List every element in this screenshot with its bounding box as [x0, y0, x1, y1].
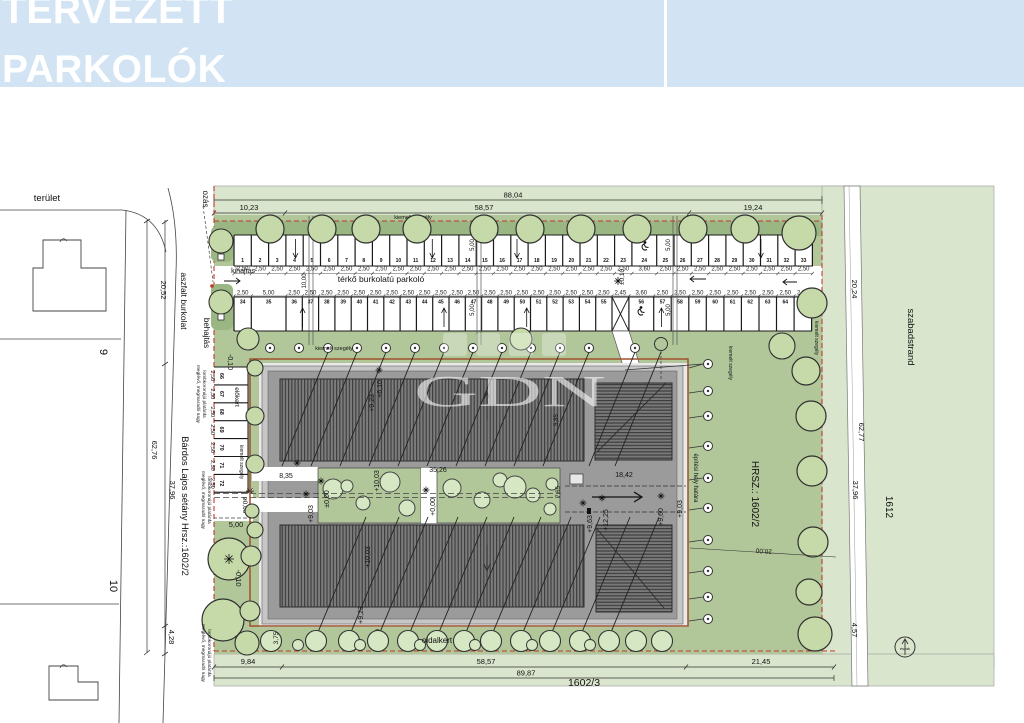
svg-text:2,50: 2,50 [209, 389, 215, 400]
svg-text:9: 9 [380, 258, 383, 264]
svg-text:2,50: 2,50 [600, 267, 612, 273]
svg-text:10: 10 [396, 258, 402, 264]
svg-text:2,50: 2,50 [566, 267, 578, 273]
svg-text:2,50: 2,50 [657, 291, 669, 297]
svg-text:+10,03: +10,03 [374, 470, 381, 492]
svg-text:25: 25 [663, 258, 669, 264]
svg-text:2,50: 2,50 [209, 371, 215, 382]
svg-text:5,00: 5,00 [666, 239, 672, 251]
svg-text:2,50: 2,50 [744, 291, 756, 297]
svg-text:14: 14 [465, 258, 471, 264]
svg-text:2,50: 2,50 [402, 291, 414, 297]
svg-text:9: 9 [97, 349, 109, 355]
svg-text:37: 37 [308, 300, 314, 306]
svg-text:11: 11 [413, 258, 419, 264]
svg-text:+0,00: +0,00 [430, 498, 437, 516]
svg-text:2,50: 2,50 [565, 291, 577, 297]
svg-text:2,50: 2,50 [533, 291, 545, 297]
svg-text:20,52: 20,52 [159, 281, 168, 300]
svg-text:5,00: 5,00 [470, 304, 476, 316]
svg-text:meglévő, megmaradó nagy: meglévő, megmaradó nagy [200, 624, 206, 683]
svg-text:kiemelt szegély: kiemelt szegély [813, 321, 819, 356]
svg-text:3,60: 3,60 [635, 291, 647, 297]
svg-text:2,50: 2,50 [321, 291, 333, 297]
svg-text:20,00: 20,00 [755, 546, 772, 554]
svg-text:10,23: 10,23 [240, 203, 259, 212]
svg-text:±0,10: ±0,10 [619, 269, 626, 286]
svg-text:43: 43 [406, 300, 412, 306]
svg-text:2,50: 2,50 [779, 291, 791, 297]
svg-text:64: 64 [783, 300, 789, 306]
svg-text:21,45: 21,45 [752, 657, 771, 666]
svg-text:2,50: 2,50 [289, 267, 301, 273]
svg-text:52: 52 [552, 300, 558, 306]
svg-text:70: 70 [218, 445, 224, 451]
svg-text:4,28: 4,28 [167, 630, 176, 645]
svg-text:17: 17 [517, 258, 523, 264]
svg-text:GDN: GDN [414, 367, 606, 416]
svg-text:2,50: 2,50 [496, 267, 508, 273]
svg-text:2,50: 2,50 [711, 267, 723, 273]
svg-text:55: 55 [601, 300, 607, 306]
svg-text:58: 58 [677, 300, 683, 306]
svg-text:40: 40 [357, 300, 363, 306]
svg-text:61: 61 [730, 300, 736, 306]
svg-text:-0,10: -0,10 [234, 569, 243, 586]
svg-text:62,76: 62,76 [150, 441, 159, 460]
svg-text:23: 23 [620, 258, 626, 264]
svg-text:2: 2 [259, 258, 262, 264]
svg-text:behajtás: behajtás [202, 318, 211, 348]
svg-text:+12,25: +12,25 [603, 509, 610, 531]
svg-text:kihajtás: kihajtás [231, 268, 255, 275]
svg-text:60: 60 [712, 300, 718, 306]
svg-text:59: 59 [695, 300, 701, 306]
svg-text:2,50: 2,50 [288, 291, 300, 297]
svg-text:67: 67 [218, 391, 224, 397]
svg-text:58,57: 58,57 [477, 657, 496, 666]
svg-text:2,50: 2,50 [517, 291, 529, 297]
svg-text:15: 15 [482, 258, 488, 264]
svg-text:7,65: 7,65 [556, 486, 562, 498]
svg-text:20,24: 20,24 [850, 280, 859, 299]
svg-text:kiemelt szegély: kiemelt szegély [727, 346, 733, 381]
svg-text:2,50: 2,50 [375, 267, 387, 273]
svg-text:2,50: 2,50 [209, 442, 215, 453]
svg-text:37,96: 37,96 [851, 481, 860, 500]
svg-text:±0,00: ±0,00 [324, 490, 331, 508]
svg-text:50: 50 [520, 300, 526, 306]
svg-text:6: 6 [328, 258, 331, 264]
svg-text:9,84: 9,84 [241, 657, 256, 666]
svg-text:észak: észak [900, 647, 910, 651]
svg-text:71: 71 [218, 462, 224, 468]
svg-text:45: 45 [438, 300, 444, 306]
svg-text:2,50: 2,50 [549, 291, 561, 297]
svg-text:51: 51 [536, 300, 542, 306]
svg-text:44: 44 [422, 300, 428, 306]
svg-text:5,00: 5,00 [229, 520, 244, 529]
svg-text:2,50: 2,50 [692, 291, 704, 297]
svg-text:2,50: 2,50 [763, 267, 775, 273]
svg-text:aszfalt burkolat: aszfalt burkolat [179, 272, 189, 330]
svg-text:2,50: 2,50 [674, 291, 686, 297]
svg-text:18,42: 18,42 [615, 472, 633, 479]
svg-text:HRSZ.: 1602/2: HRSZ.: 1602/2 [749, 461, 760, 528]
svg-text:2,50: 2,50 [305, 291, 317, 297]
svg-text:2,50: 2,50 [323, 267, 335, 273]
svg-text:19: 19 [551, 258, 557, 264]
svg-text:19,24: 19,24 [744, 203, 763, 212]
svg-text:4: 4 [293, 258, 296, 264]
svg-text:oldalkert: oldalkert [422, 636, 453, 645]
svg-text:20: 20 [569, 258, 575, 264]
svg-text:-0,10: -0,10 [226, 354, 233, 370]
svg-text:29: 29 [732, 258, 738, 264]
svg-text:21: 21 [586, 258, 592, 264]
svg-text:2,50: 2,50 [677, 267, 689, 273]
svg-text:10,00: 10,00 [302, 273, 308, 289]
svg-text:+9,60: +9,60 [658, 508, 665, 526]
svg-text:63: 63 [765, 300, 771, 306]
svg-text:3: 3 [276, 258, 279, 264]
svg-text:89,87: 89,87 [517, 669, 536, 678]
svg-text:69: 69 [218, 427, 224, 433]
svg-text:35,26: 35,26 [429, 467, 447, 474]
svg-text:18: 18 [534, 258, 540, 264]
svg-text:62: 62 [747, 300, 753, 306]
svg-text:2,50: 2,50 [209, 424, 215, 435]
svg-text:+10,03: +10,03 [365, 546, 372, 568]
svg-text:2,50: 2,50 [341, 267, 353, 273]
svg-text:2,50: 2,50 [709, 291, 721, 297]
svg-text:2,50: 2,50 [660, 267, 672, 273]
svg-text:53: 53 [568, 300, 574, 306]
svg-text:30: 30 [749, 258, 755, 264]
svg-text:lombkoronájú platánfa: lombkoronájú platánfa [206, 476, 212, 524]
svg-text:7: 7 [345, 258, 348, 264]
svg-text:+9,63: +9,63 [587, 515, 594, 533]
svg-text:22: 22 [603, 258, 609, 264]
svg-text:62,77: 62,77 [857, 423, 866, 442]
svg-text:2,50: 2,50 [254, 267, 266, 273]
svg-text:2,50: 2,50 [583, 267, 595, 273]
svg-text:Bárdos Lajos sétány Hrsz.:1602: Bárdos Lajos sétány Hrsz.:1602/2 [180, 436, 190, 576]
svg-text:+6,10: +6,10 [377, 380, 384, 398]
svg-text:27: 27 [697, 258, 703, 264]
svg-text:57: 57 [660, 300, 666, 306]
svg-text:42: 42 [389, 300, 395, 306]
svg-text:2,50: 2,50 [531, 267, 543, 273]
svg-text:2,50: 2,50 [548, 267, 560, 273]
svg-text:66: 66 [218, 373, 224, 379]
svg-text:+9,03: +9,03 [677, 500, 684, 518]
svg-text:szabadstrand: szabadstrand [905, 308, 916, 365]
svg-text:35: 35 [266, 300, 272, 306]
svg-text:2,50: 2,50 [462, 267, 474, 273]
svg-text:2,50: 2,50 [370, 291, 382, 297]
svg-text:2,50: 2,50 [762, 291, 774, 297]
svg-text:meglévő, megmaradó nagy: meglévő, megmaradó nagy [195, 365, 201, 424]
svg-text:5,00: 5,00 [263, 291, 275, 297]
svg-text:előkert: előkert [233, 387, 240, 407]
svg-text:építési hely határa: építési hely határa [692, 453, 698, 503]
svg-text:58,57: 58,57 [475, 203, 494, 212]
svg-text:lombkoronájú platánfa: lombkoronájú platánfa [206, 629, 212, 677]
svg-text:4,57: 4,57 [850, 623, 859, 638]
svg-text:68: 68 [218, 409, 224, 415]
svg-text:2,50: 2,50 [354, 291, 366, 297]
svg-text:2,50: 2,50 [358, 267, 370, 273]
svg-text:2,50: 2,50 [271, 267, 283, 273]
svg-text:26: 26 [680, 258, 686, 264]
svg-text:72: 72 [218, 480, 224, 486]
svg-text:2,50: 2,50 [781, 267, 793, 273]
svg-text:2,45: 2,45 [615, 291, 627, 297]
svg-text:38: 38 [324, 300, 330, 306]
svg-text:2,50: 2,50 [598, 291, 610, 297]
svg-text:2,50: 2,50 [386, 291, 398, 297]
svg-text:8,35: 8,35 [279, 473, 293, 480]
svg-text:lombkoronájú platánfa: lombkoronájú platánfa [201, 370, 207, 418]
svg-text:2,50: 2,50 [798, 267, 810, 273]
svg-text:37,96: 37,96 [168, 481, 177, 500]
svg-text:49: 49 [503, 300, 509, 306]
svg-text:5,00: 5,00 [666, 304, 672, 316]
svg-text:32: 32 [784, 258, 790, 264]
svg-text:48: 48 [487, 300, 493, 306]
svg-text:+9,23: +9,23 [369, 394, 376, 412]
svg-text:2,50: 2,50 [444, 267, 456, 273]
svg-text:2,50: 2,50 [729, 267, 741, 273]
svg-text:88,04: 88,04 [504, 191, 523, 200]
svg-text:2,50: 2,50 [514, 267, 526, 273]
svg-text:33: 33 [801, 258, 807, 264]
svg-text:2,50: 2,50 [500, 291, 512, 297]
svg-text:2,50: 2,50 [419, 291, 431, 297]
svg-text:8: 8 [362, 258, 365, 264]
svg-text:2,50: 2,50 [306, 267, 318, 273]
svg-text:34: 34 [240, 300, 246, 306]
svg-text:kiemelt szegély: kiemelt szegély [315, 346, 353, 352]
svg-text:3,60: 3,60 [638, 267, 650, 273]
svg-text:31: 31 [766, 258, 772, 264]
svg-text:kiemelt szegély: kiemelt szegély [238, 445, 244, 480]
svg-text:24: 24 [642, 258, 648, 264]
svg-text:10: 10 [107, 580, 119, 592]
svg-text:13: 13 [447, 258, 453, 264]
svg-text:36: 36 [291, 300, 297, 306]
svg-text:12: 12 [430, 258, 436, 264]
svg-text:2,50: 2,50 [209, 460, 215, 471]
svg-text:2,50: 2,50 [582, 291, 594, 297]
svg-text:meglévő, megmaradó nagy: meglévő, megmaradó nagy [200, 471, 206, 530]
svg-text:2,50: 2,50 [468, 291, 480, 297]
svg-text:54: 54 [585, 300, 591, 306]
svg-text:ozás: ozás [201, 191, 210, 208]
svg-text:2,50: 2,50 [435, 291, 447, 297]
svg-text:28: 28 [714, 258, 720, 264]
svg-text:+9,23: +9,23 [358, 606, 365, 624]
svg-text:2,50: 2,50 [209, 406, 215, 417]
svg-text:2,50: 2,50 [746, 267, 758, 273]
svg-text:46: 46 [454, 300, 460, 306]
svg-text:2,50: 2,50 [484, 291, 496, 297]
svg-text:3,75: 3,75 [273, 631, 280, 644]
svg-text:2,50: 2,50 [694, 267, 706, 273]
svg-text:2,50: 2,50 [727, 291, 739, 297]
svg-text:2,50: 2,50 [393, 267, 405, 273]
svg-text:1: 1 [241, 258, 244, 264]
svg-text:2,50: 2,50 [451, 291, 463, 297]
svg-text:1612: 1612 [883, 496, 894, 519]
svg-text:2,50: 2,50 [237, 291, 249, 297]
svg-text:1602/3: 1602/3 [568, 677, 600, 689]
svg-text:térkő burkolatú parkoló: térkő burkolatú parkoló [338, 274, 425, 284]
svg-text:39: 39 [340, 300, 346, 306]
svg-text:56: 56 [639, 300, 645, 306]
svg-text:terület: terület [34, 193, 61, 204]
svg-text:16: 16 [499, 258, 505, 264]
svg-text:41: 41 [373, 300, 379, 306]
svg-text:2,50: 2,50 [410, 267, 422, 273]
svg-text:+9,03: +9,03 [308, 505, 315, 523]
svg-text:2,50: 2,50 [337, 291, 349, 297]
svg-text:2,50: 2,50 [427, 267, 439, 273]
